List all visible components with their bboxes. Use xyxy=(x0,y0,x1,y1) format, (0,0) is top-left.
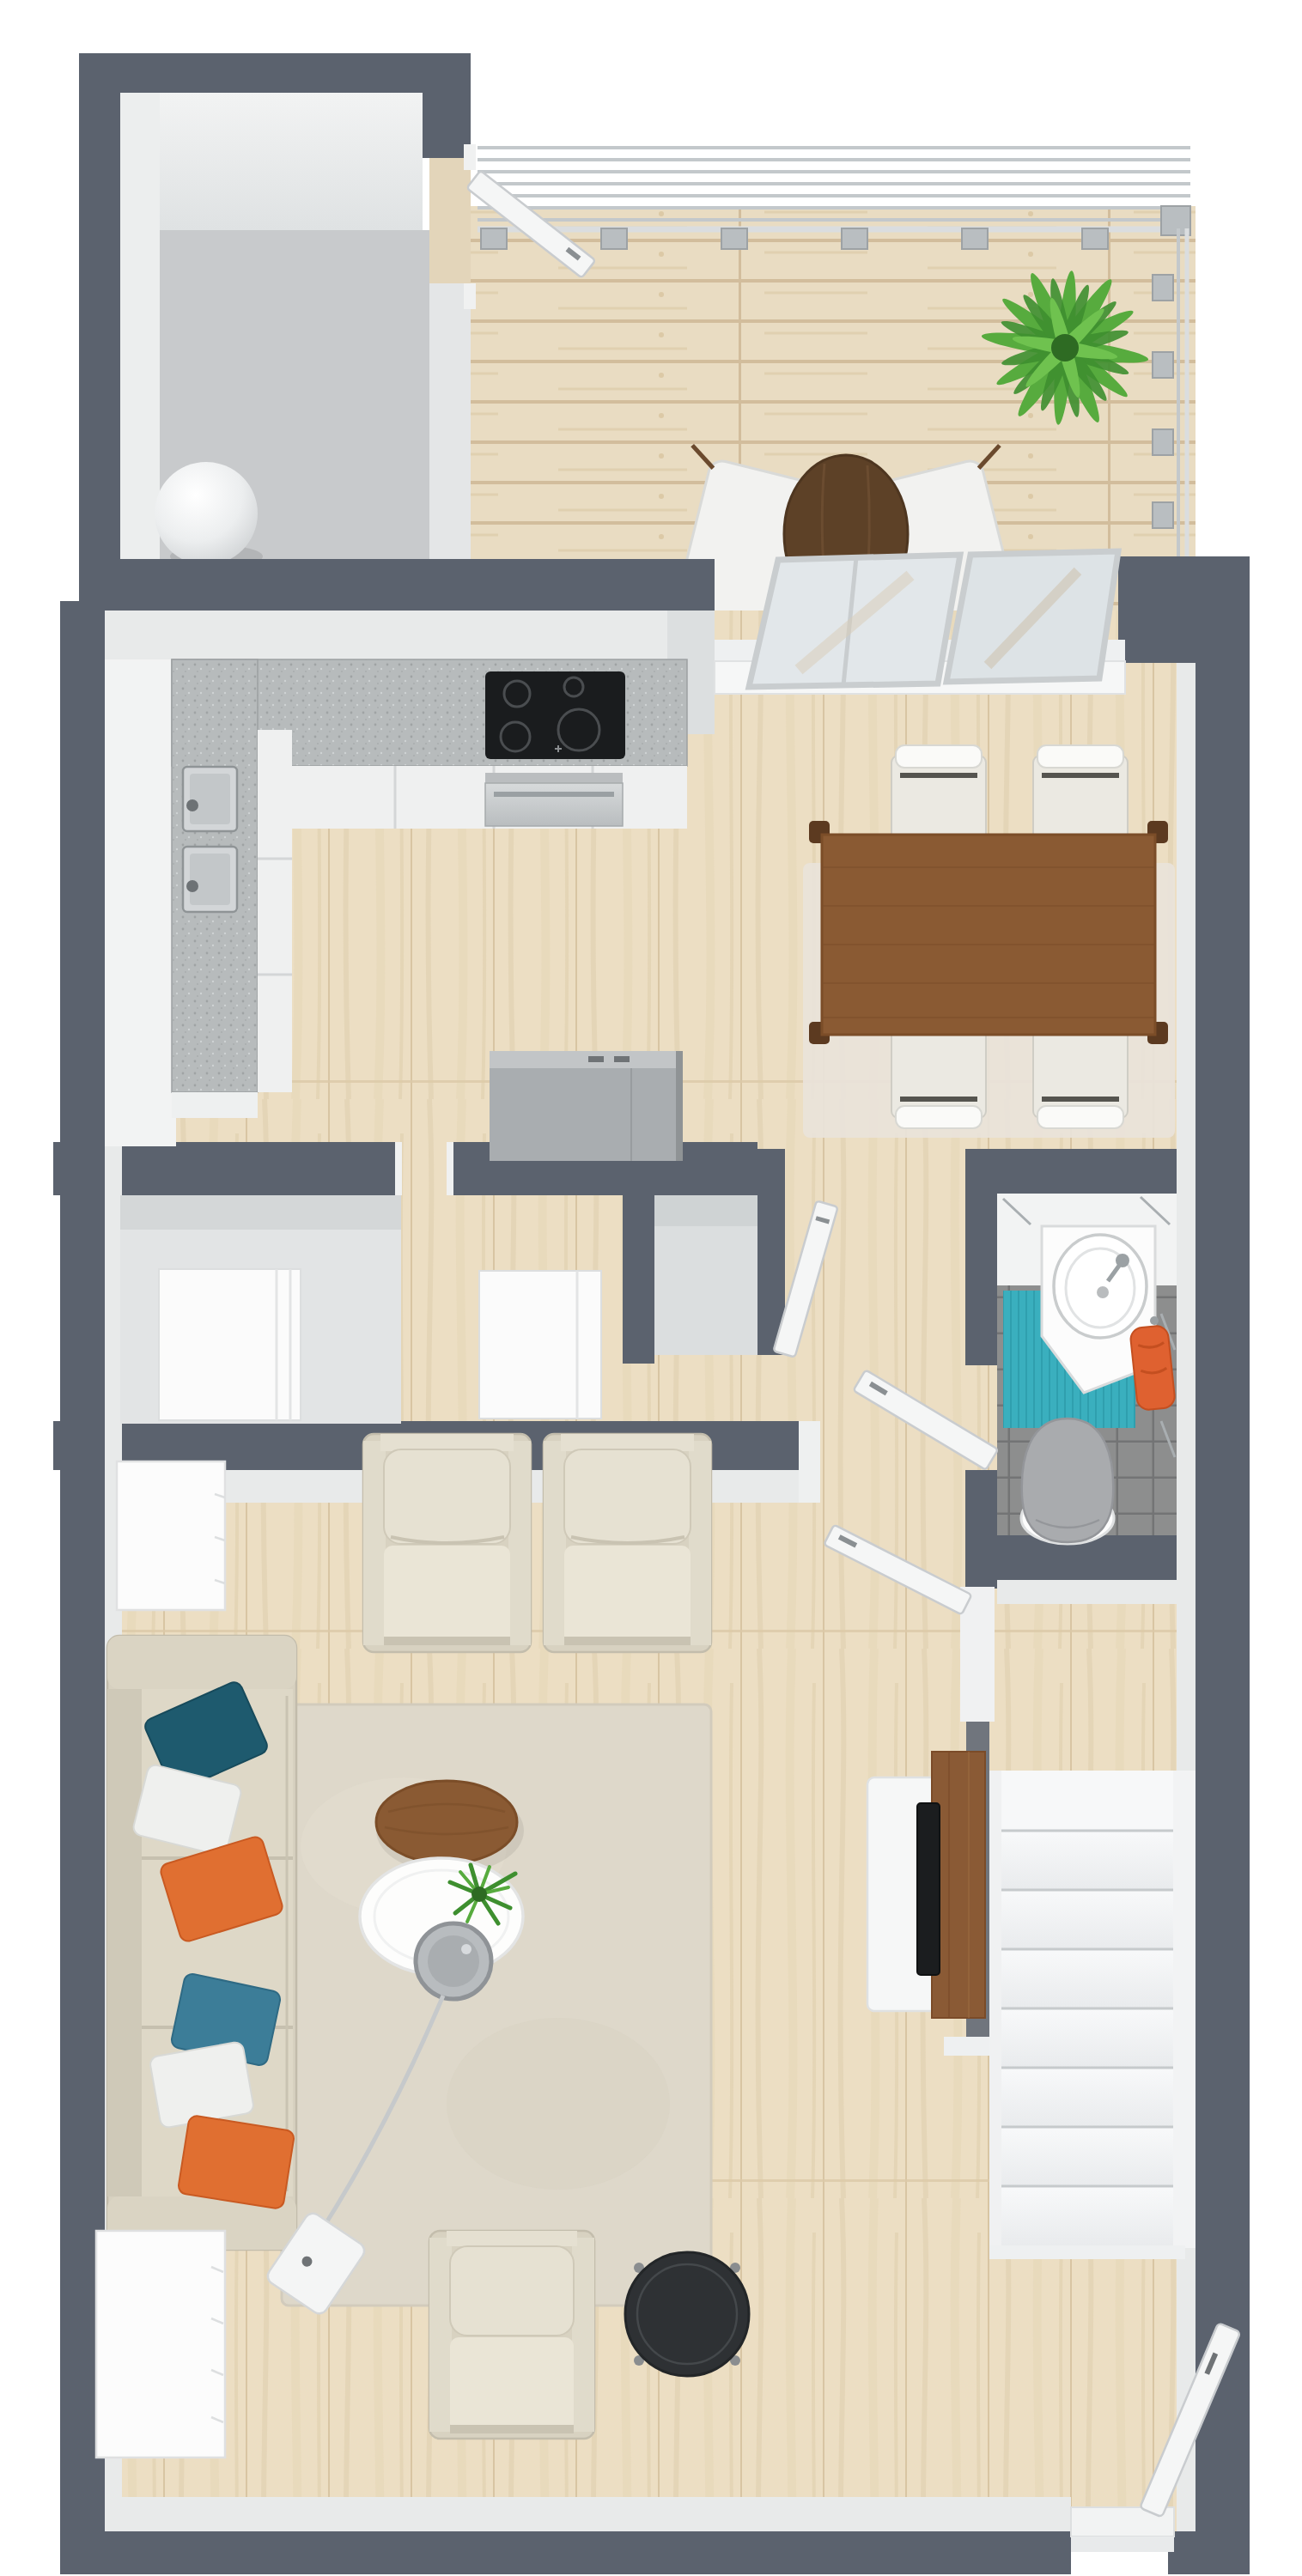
wall-bath-north xyxy=(965,1149,1196,1194)
cabinet-fronts-left xyxy=(258,730,292,1092)
island-cabinet xyxy=(490,1051,683,1161)
face-kitchen-north xyxy=(105,611,715,659)
door-jamb xyxy=(464,283,476,309)
wall-ne-corner xyxy=(1118,556,1250,663)
dresser xyxy=(96,2231,225,2458)
pillow-orange xyxy=(178,2115,295,2209)
sideboard xyxy=(117,1461,225,1610)
storage-wall-face-top xyxy=(120,93,423,230)
toilet xyxy=(1021,1419,1114,1544)
passage-jamb xyxy=(447,1142,453,1195)
cooktop xyxy=(485,671,625,759)
floor-plan-canvas xyxy=(0,0,1302,2576)
pillow-white xyxy=(149,2041,255,2129)
closet-a-shadow xyxy=(120,1195,401,1230)
towel-hook xyxy=(1150,1316,1159,1325)
oven xyxy=(485,773,623,826)
orange-towel xyxy=(1129,1325,1176,1411)
drain xyxy=(1097,1286,1109,1298)
handle xyxy=(614,1056,630,1062)
dining-chair xyxy=(1033,1022,1128,1128)
sliding-glass-door xyxy=(715,551,1125,694)
storage-wall-top xyxy=(79,53,471,93)
black-side-table xyxy=(625,2252,749,2376)
entry-sill xyxy=(1071,2537,1174,2552)
face-corridor xyxy=(997,1580,1177,1604)
tv-screen xyxy=(917,1803,940,1975)
face-wall-endcap2 xyxy=(799,1421,820,1503)
door-jamb xyxy=(464,144,476,170)
stair-base xyxy=(989,2245,1185,2259)
stair-landing xyxy=(1001,1771,1173,1831)
dining-table xyxy=(809,821,1168,1044)
staircase xyxy=(989,1771,1196,2259)
handle xyxy=(588,1056,604,1062)
face-bottom xyxy=(105,2497,1071,2531)
lounge-chair xyxy=(429,2231,594,2439)
divider-endcap xyxy=(944,2037,989,2056)
storage-room xyxy=(79,53,476,611)
coffee-table-wood xyxy=(376,1781,517,1863)
closet-a-cabinet xyxy=(159,1269,301,1420)
stringer-right xyxy=(1173,1771,1196,2248)
kitchen-tall-cabinets xyxy=(105,659,176,1146)
wall-outer-bottom xyxy=(60,2531,1071,2574)
storage-wall-face-right xyxy=(423,283,471,559)
storage-wall-right-upper xyxy=(423,53,471,158)
oven-handle xyxy=(494,792,614,797)
storage-wall-face-left xyxy=(120,93,160,559)
floor-plan-render xyxy=(0,0,1302,2576)
faucet xyxy=(186,880,198,892)
stair-treads xyxy=(1001,1831,1173,2245)
closet-c-shadow xyxy=(654,1195,757,1226)
wall-north-kitchen xyxy=(79,559,715,611)
sphere-floor-lamp xyxy=(155,462,258,565)
wall-closet-divider xyxy=(623,1195,654,1364)
armchair xyxy=(363,1434,531,1652)
dining-chair xyxy=(891,1022,986,1128)
faucet xyxy=(186,799,198,811)
storage-door-opening-floor xyxy=(429,158,471,283)
stringer-left xyxy=(989,1771,1001,2248)
passage-jamb xyxy=(395,1142,402,1195)
counter-endcap xyxy=(172,1092,258,1118)
wall-outer-right xyxy=(1196,556,1250,2574)
bathroom xyxy=(997,1194,1177,1544)
closet-b-dresser xyxy=(479,1271,601,1419)
storage-wall-left xyxy=(79,53,120,611)
armchair xyxy=(544,1434,711,1652)
